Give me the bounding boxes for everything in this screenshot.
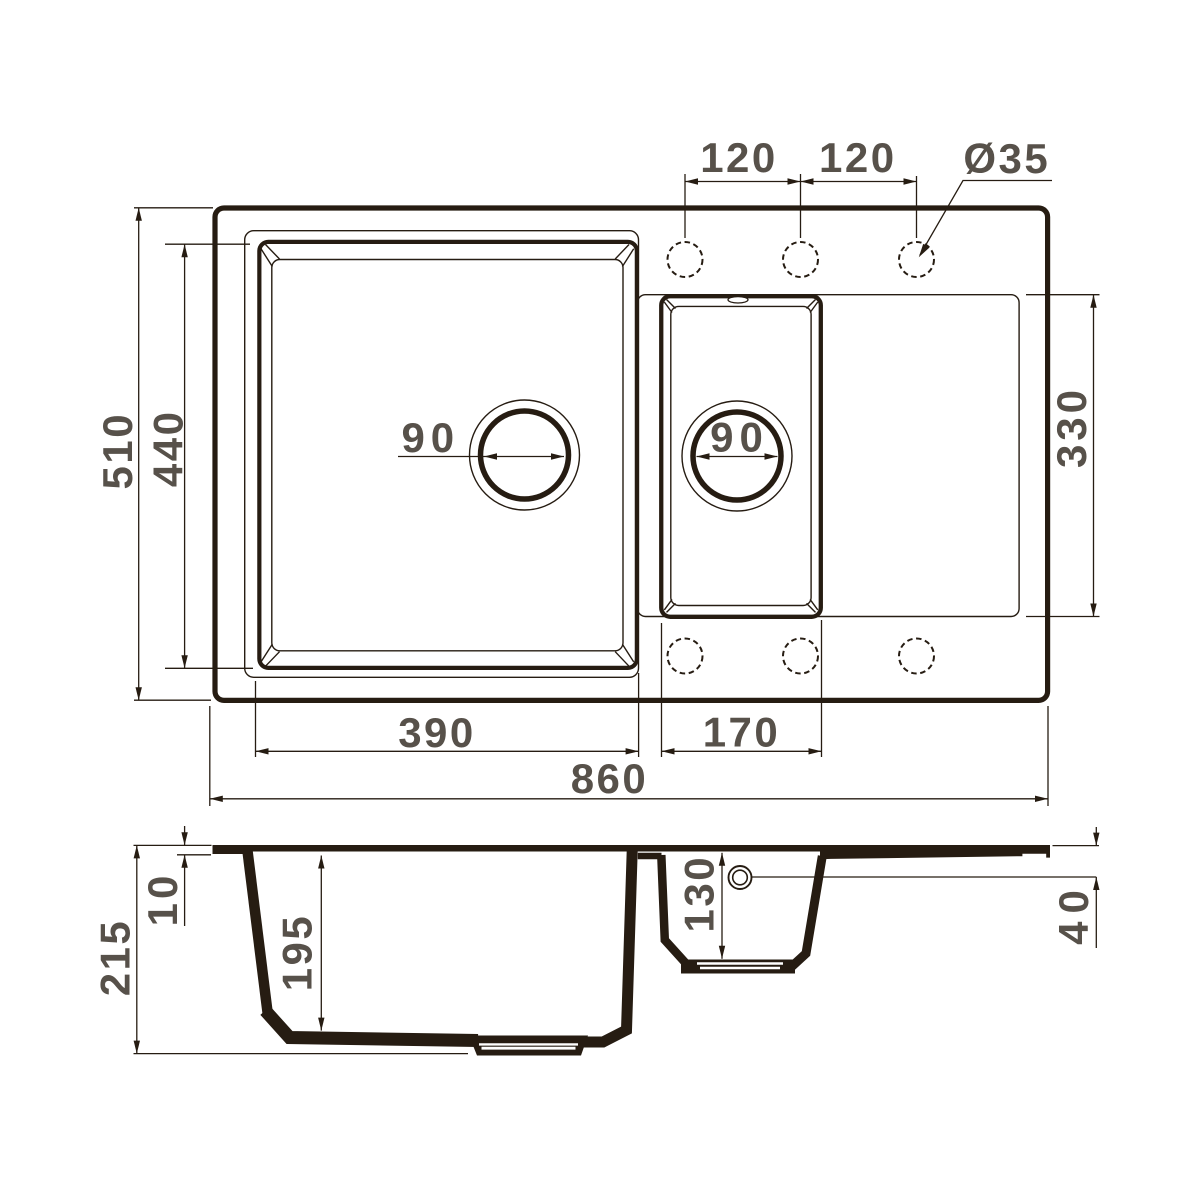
svg-text:170: 170 [703, 709, 781, 756]
svg-text:40: 40 [1050, 882, 1097, 945]
svg-text:390: 390 [398, 709, 476, 756]
svg-text:510: 510 [94, 412, 141, 490]
svg-text:90: 90 [710, 414, 769, 461]
svg-text:120: 120 [700, 134, 778, 181]
svg-text:130: 130 [676, 855, 723, 933]
svg-text:10: 10 [139, 872, 186, 927]
svg-text:Ø35: Ø35 [963, 135, 1050, 182]
svg-text:330: 330 [1048, 386, 1095, 468]
svg-text:215: 215 [91, 919, 138, 997]
svg-text:90: 90 [401, 414, 460, 461]
svg-text:120: 120 [819, 134, 897, 181]
svg-text:860: 860 [571, 755, 649, 802]
svg-text:195: 195 [273, 914, 320, 992]
svg-text:440: 440 [145, 410, 192, 488]
